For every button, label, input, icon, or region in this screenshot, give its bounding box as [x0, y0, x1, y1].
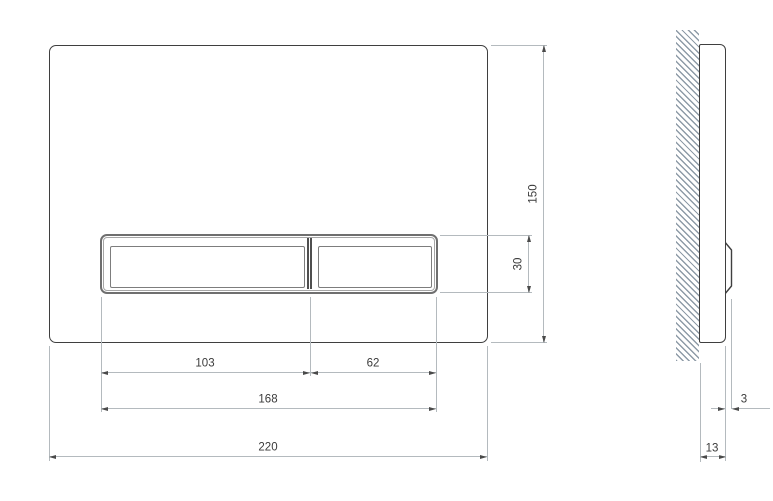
- side-view-plate-profile: [699, 44, 726, 343]
- arrowhead-right-icon: [303, 371, 310, 375]
- button-face-large: [110, 246, 305, 288]
- ext-line-bump-face: [731, 299, 732, 409]
- arrowhead-down-icon: [542, 336, 546, 343]
- ext-line-plate-face: [725, 346, 726, 461]
- ext-line-plate-right: [487, 346, 488, 461]
- button-divider: [307, 238, 312, 289]
- arrowhead-left-icon: [101, 407, 108, 411]
- arrowhead-right-icon: [718, 407, 725, 411]
- dim-line-button-height: [528, 235, 529, 293]
- ext-line-buttons-left: [101, 297, 102, 412]
- ext-line-button-top: [440, 235, 532, 236]
- arrowhead-up-icon: [542, 45, 546, 52]
- ext-line-buttons-right: [436, 297, 437, 412]
- dim-label-buttons-total: 168: [256, 394, 279, 406]
- ext-line-wall-face: [700, 363, 701, 462]
- dim-line-button-large: [101, 372, 310, 373]
- dim-label-button-small: 62: [365, 358, 382, 370]
- arrowhead-left-icon: [700, 455, 707, 459]
- ext-line-plate-left: [49, 346, 50, 461]
- arrowhead-left-icon: [101, 371, 108, 375]
- dim-line-plate-width: [49, 456, 487, 457]
- arrowhead-right-icon: [429, 407, 436, 411]
- dim-label-plate-width: 220: [256, 442, 279, 454]
- dim-line-button-small: [310, 372, 436, 373]
- technical-drawing-canvas: 103 62 168 220 150 30 3 13: [0, 0, 773, 501]
- arrowhead-left-icon: [49, 455, 56, 459]
- dim-label-button-height: 30: [513, 256, 525, 273]
- ext-line-button-divider: [310, 297, 311, 376]
- dim-label-plate-height: 150: [528, 182, 540, 205]
- front-plate-outline: [49, 45, 488, 343]
- wall-section-hatch: [676, 30, 699, 361]
- button-face-small: [318, 246, 432, 288]
- button-frame: [100, 234, 438, 294]
- dim-line-buttons-total: [101, 408, 436, 409]
- arrowhead-right-icon: [480, 455, 487, 459]
- arrowhead-left-icon: [311, 371, 318, 375]
- arrowhead-right-icon: [719, 455, 726, 459]
- ext-line-plate-top: [491, 45, 547, 46]
- dim-label-button-protrusion: 3: [739, 394, 749, 406]
- arrowhead-down-icon: [527, 286, 531, 293]
- arrowhead-right-icon: [429, 371, 436, 375]
- dim-line-plate-height: [543, 45, 544, 343]
- arrowhead-up-icon: [527, 235, 531, 242]
- arrowhead-left-icon: [732, 407, 739, 411]
- ext-line-plate-bottom: [491, 342, 547, 343]
- dim-label-button-large: 103: [193, 358, 216, 370]
- ext-line-button-bottom: [440, 292, 532, 293]
- dim-label-plate-depth: 13: [704, 443, 721, 455]
